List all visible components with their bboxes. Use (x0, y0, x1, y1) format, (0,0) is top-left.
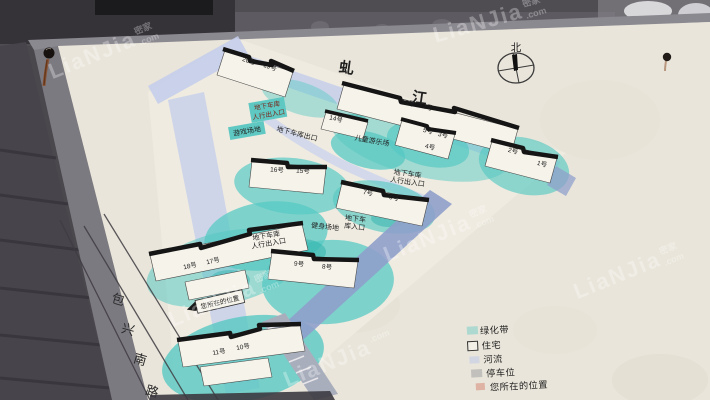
photo-of-site-plan-board: 包 兴 南 路 20号 19号 13号 12号 14号 5号 (0, 0, 710, 400)
river-swatch (469, 356, 479, 364)
site-plan-scene: 包 兴 南 路 20号 19号 13号 12号 14号 5号 (0, 0, 710, 400)
svg-text:住宅: 住宅 (481, 339, 501, 351)
north-label: 北 (511, 42, 522, 54)
building-label: 8号 (322, 262, 333, 271)
greenbelt-swatch (467, 326, 478, 335)
svg-text:河流: 河流 (483, 353, 503, 365)
building-label: 9号 (294, 259, 305, 268)
residence-swatch (467, 341, 477, 351)
parking-swatch (471, 369, 482, 378)
building-label: 16号 (270, 166, 285, 175)
river-name-char: 江 (411, 88, 429, 108)
your-location-swatch (476, 383, 485, 390)
svg-text:停车位: 停车位 (486, 366, 516, 379)
river-name-char: 虬 (338, 58, 356, 78)
garage-entrance-label: 地下车 库入口 (344, 213, 367, 232)
svg-text:绿化带: 绿化带 (480, 324, 510, 337)
building-label: 15号 (296, 167, 311, 176)
